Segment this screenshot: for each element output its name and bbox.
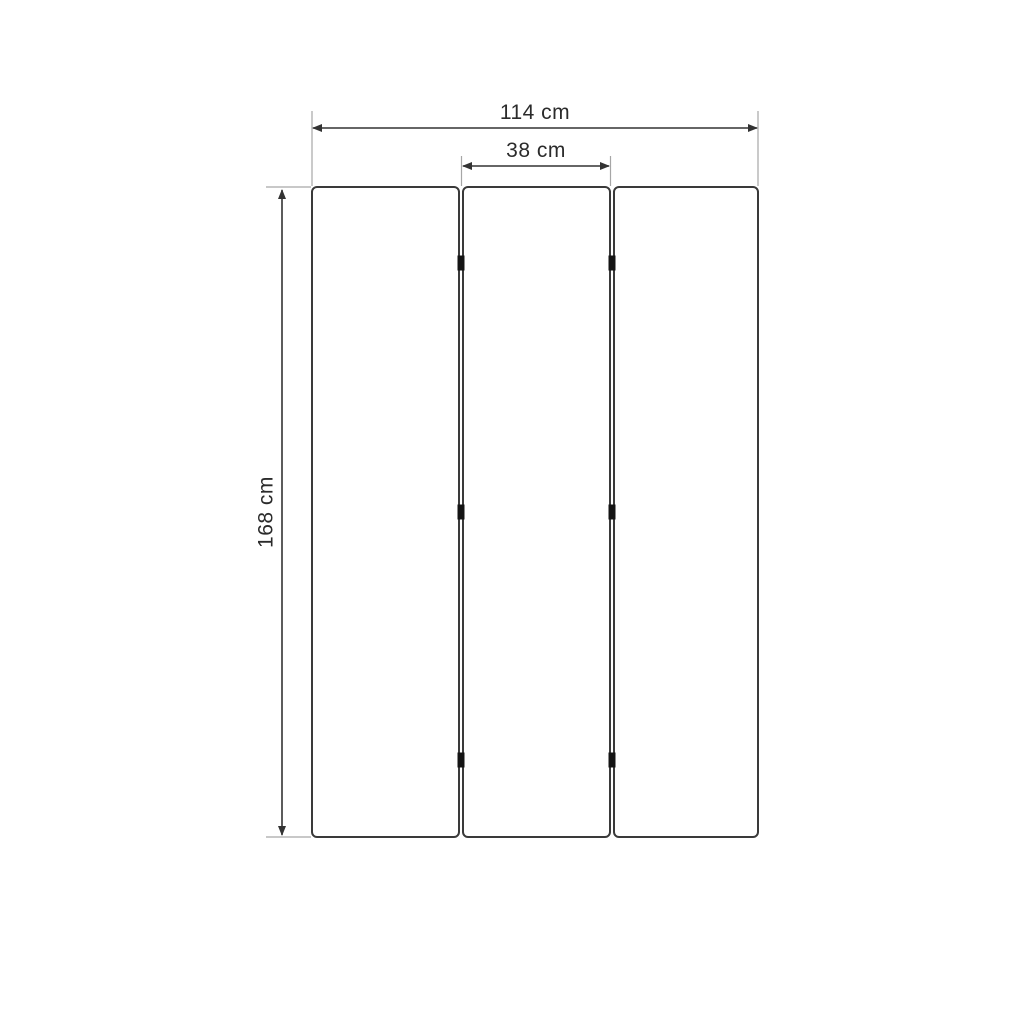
panel-middle — [463, 187, 610, 837]
hinge-left-middle — [458, 505, 465, 520]
hinge-right-middle — [609, 505, 616, 520]
panel-right — [614, 187, 758, 837]
total-width-label: 114 cm — [500, 101, 570, 124]
height-label: 168 cm — [255, 476, 278, 548]
hinge-right-bottom — [609, 753, 616, 768]
hinge-left-top — [458, 256, 465, 271]
dimension-diagram: 114 cm 38 cm 168 cm — [0, 0, 1024, 1024]
hinge-right-top — [609, 256, 616, 271]
hinge-left-bottom — [458, 753, 465, 768]
panel-left — [312, 187, 459, 837]
panel-width-label: 38 cm — [506, 139, 566, 162]
diagram-canvas: 114 cm 38 cm 168 cm — [0, 0, 1024, 1024]
